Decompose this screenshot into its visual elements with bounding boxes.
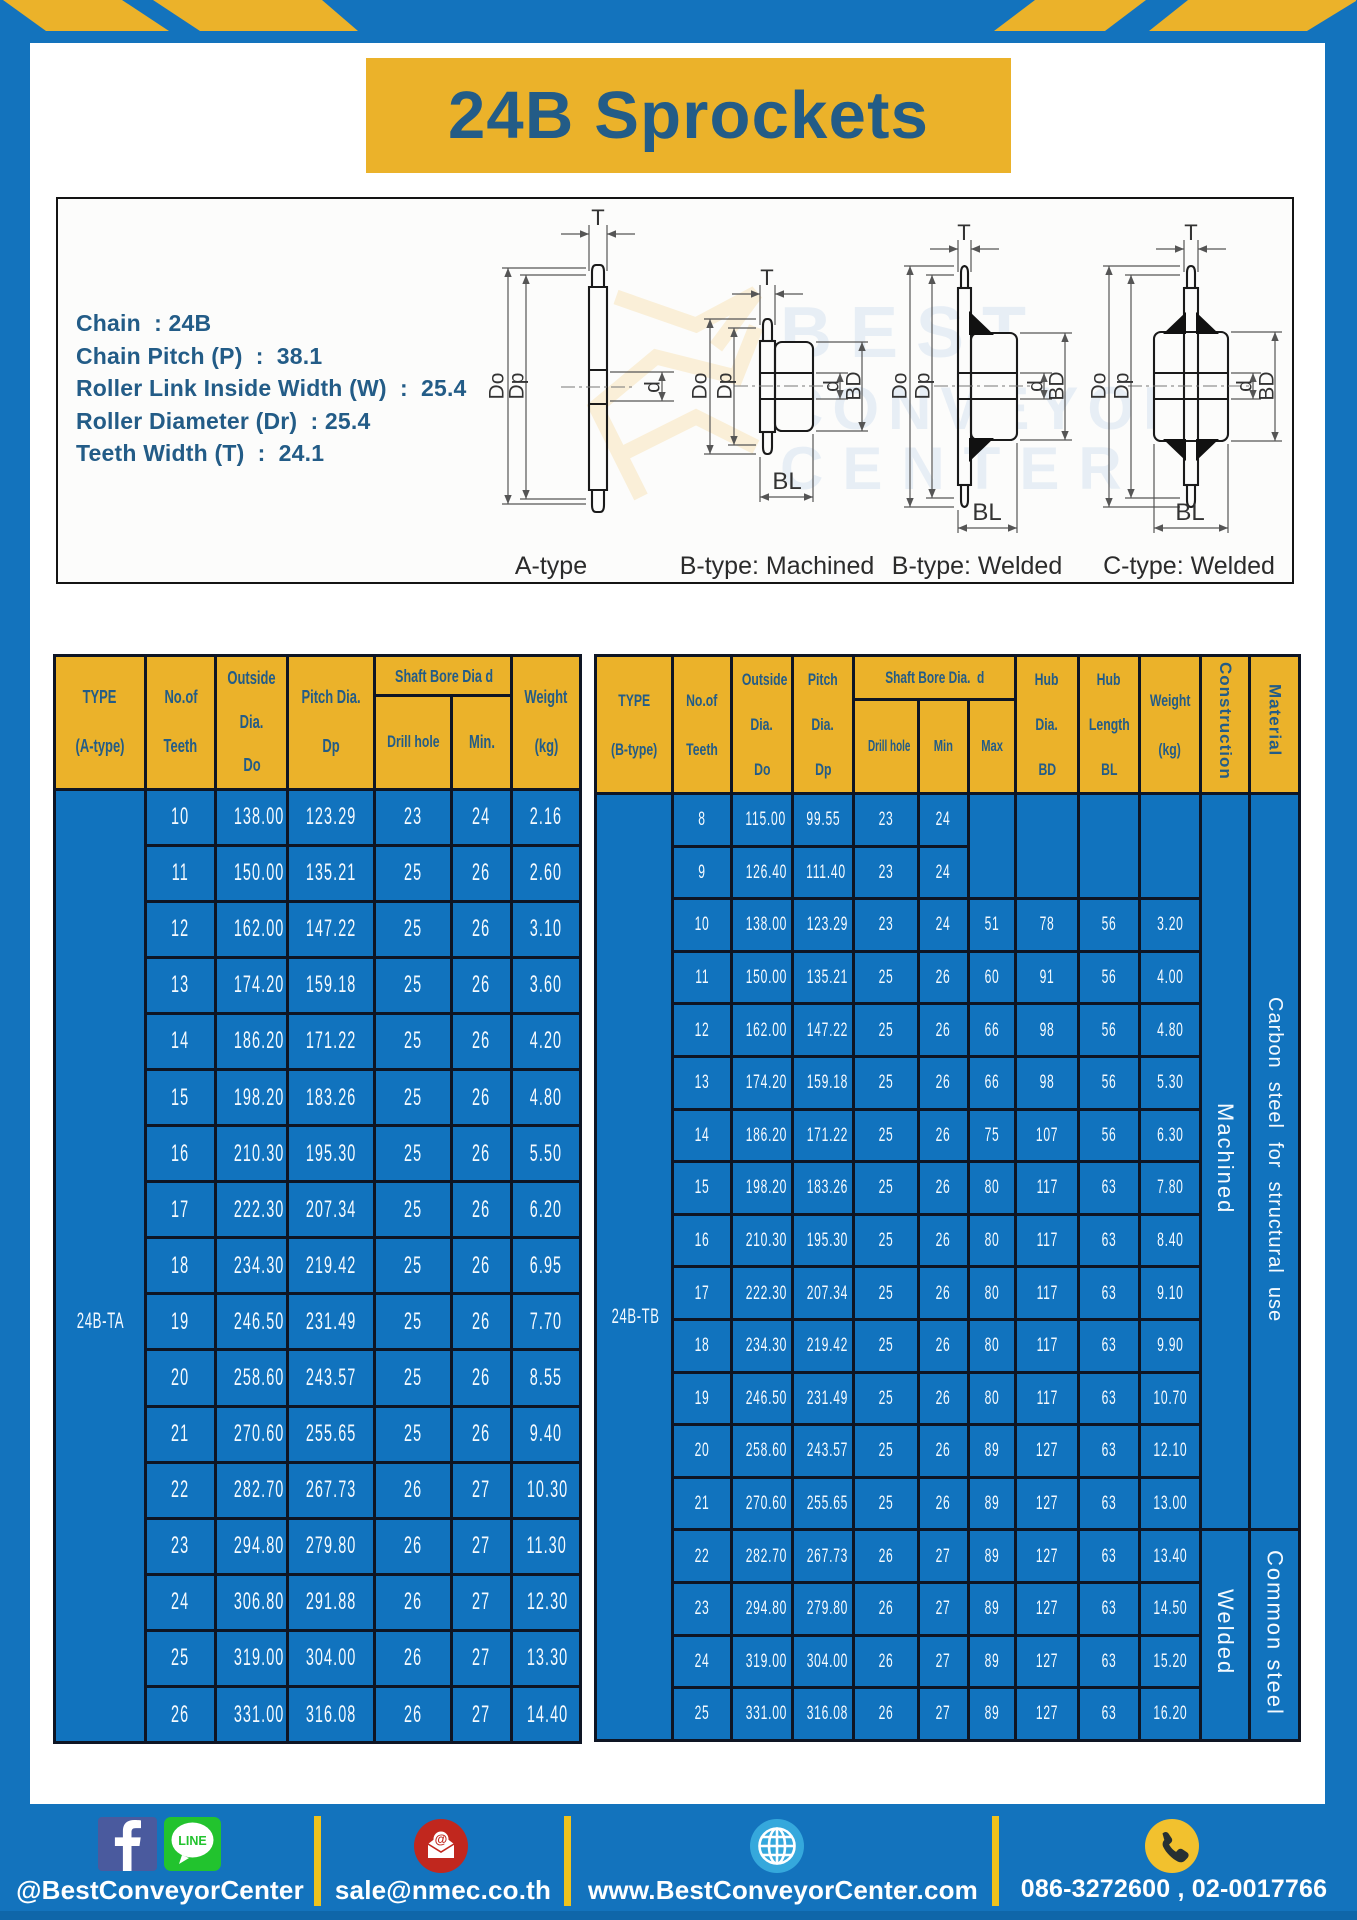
svg-text:T: T (1184, 220, 1197, 245)
svg-text:BL: BL (772, 468, 801, 495)
svg-text:Do: Do (688, 373, 711, 400)
svg-text:B-type: Welded: B-type: Welded (892, 552, 1062, 579)
svg-text:BD: BD (1045, 371, 1068, 400)
svg-text:Dp: Dp (505, 373, 528, 400)
svg-text:BL: BL (972, 499, 1001, 526)
svg-text:T: T (591, 205, 604, 230)
svg-text:Dp: Dp (1110, 373, 1133, 400)
svg-text:C-type: Welded: C-type: Welded (1103, 552, 1275, 579)
svg-text:LINE: LINE (178, 1834, 206, 1848)
svg-text:T: T (957, 220, 970, 245)
svg-text:d: d (1233, 380, 1256, 392)
svg-text:Dp: Dp (911, 373, 934, 400)
svg-text:BD: BD (1255, 371, 1278, 400)
svg-text:B-type: Machined: B-type: Machined (680, 552, 875, 579)
svg-text:d: d (820, 380, 843, 392)
svg-text:Do: Do (888, 373, 911, 400)
svg-text:BD: BD (842, 371, 865, 400)
svg-text:Do: Do (1087, 373, 1110, 400)
svg-text:d: d (641, 381, 664, 393)
svg-text:Dp: Dp (713, 373, 736, 400)
svg-text:@: @ (435, 1832, 448, 1847)
svg-text:T: T (760, 265, 773, 290)
svg-text:A-type: A-type (515, 552, 587, 579)
svg-text:d: d (1024, 380, 1047, 392)
svg-text:BL: BL (1175, 499, 1204, 526)
